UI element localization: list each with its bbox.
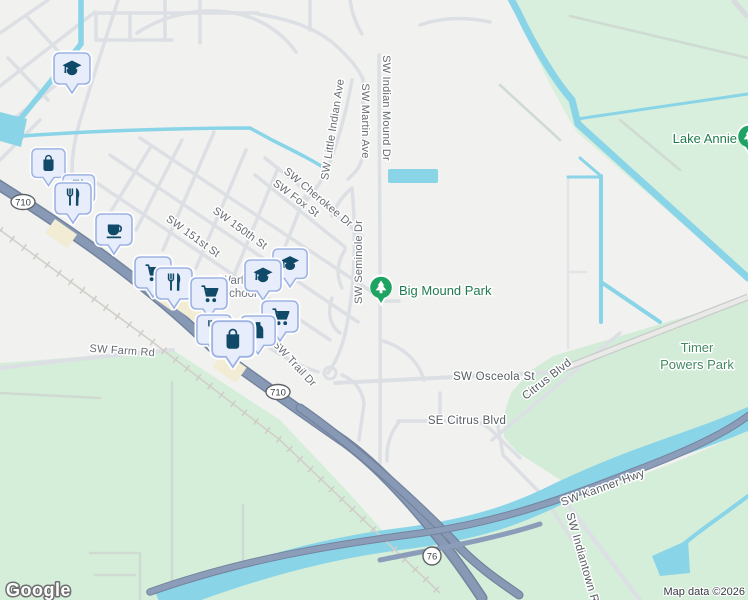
street-label-martin: SW Martin Ave — [359, 83, 371, 158]
timer-powers-park-label-line1[interactable]: Timer — [681, 340, 714, 355]
street-label-indian-mound: SW Indian Mound Dr — [380, 55, 392, 161]
google-logo[interactable]: Google — [6, 580, 71, 600]
lake-annie-label[interactable]: Lake Annie — [673, 131, 737, 146]
svg-text:710: 710 — [270, 388, 286, 399]
map-canvas[interactable]: SW Indian Mound Dr SW Martin Ave SW Litt… — [0, 0, 748, 600]
timer-powers-park-label-line2[interactable]: Powers Park — [660, 357, 734, 372]
street-label-seminole: SW Seminole Dr — [353, 220, 365, 304]
route-710-shield-nw: 710 — [11, 195, 35, 210]
map-data-attribution: Map data ©2026 — [664, 586, 746, 598]
street-label-osceola: SW Osceola St — [453, 371, 535, 383]
big-mound-park-label[interactable]: Big Mound Park — [399, 283, 492, 298]
svg-text:710: 710 — [15, 198, 31, 209]
street-label-se-citrus: SE Citrus Blvd — [428, 415, 506, 427]
route-76-shield: 76 — [423, 547, 441, 565]
route-710-shield-mid: 710 — [266, 385, 290, 400]
svg-text:76: 76 — [427, 552, 438, 563]
map-svg[interactable]: SW Indian Mound Dr SW Martin Ave SW Litt… — [0, 0, 748, 600]
park-areas — [0, 0, 748, 600]
